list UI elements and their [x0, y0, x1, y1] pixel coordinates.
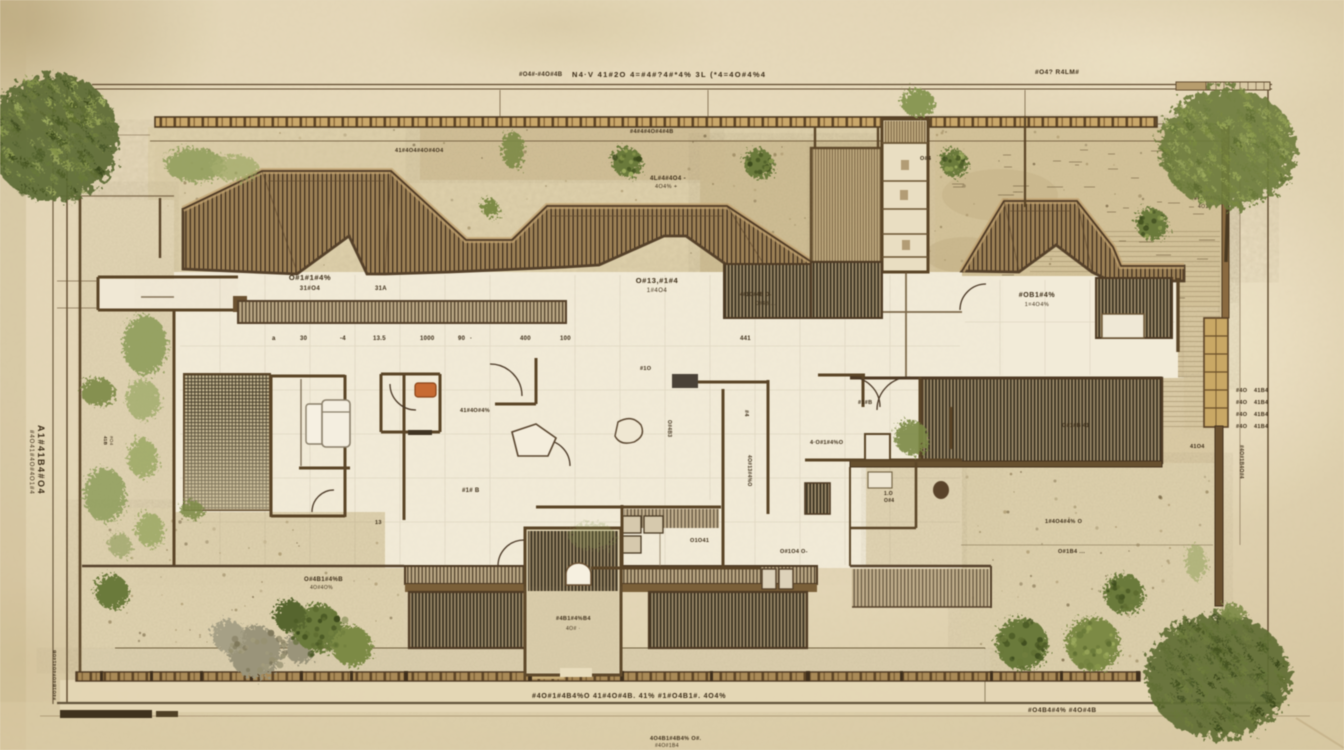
svg-text:#4O: #4O [1236, 400, 1248, 406]
svg-text:N4·V 41#2O 4=#4#?4#*4% 3L (*4=: N4·V 41#2O 4=#4#?4#*4% 3L (*4=4O#4%4 [572, 70, 766, 79]
svg-text:41O4: 41O4 [1190, 444, 1205, 450]
svg-text:#O4#-#4O#4B: #O4#-#4O#4B [519, 72, 563, 78]
svg-text:4O# ·: 4O# · [566, 626, 581, 632]
svg-text:1#4O4: 1#4O4 [647, 288, 668, 294]
svg-text:41B4: 41B4 [1254, 400, 1269, 406]
svg-text:O#1O4 O-: O#1O4 O- [780, 549, 808, 555]
svg-text:4O4B1#4B4% O#.: 4O4B1#4B4% O#. [650, 736, 702, 742]
svg-text:#O4? R4LM#: #O4? R4LM# [1035, 69, 1079, 76]
svg-text:4O#4O%: 4O#4O% [310, 585, 333, 591]
svg-text:O1O41: O1O41 [690, 538, 709, 544]
svg-text:O#1#1#4%: O#1#1#4% [289, 273, 331, 282]
svg-text:#1# B: #1# B [462, 488, 480, 494]
svg-text:4#1O#4B O-: 4#1O#4B O- [740, 292, 771, 298]
svg-text:100: 100 [560, 336, 571, 342]
svg-text:#4O: #4O [1236, 424, 1248, 430]
svg-text:4O4% +: 4O4% + [655, 184, 677, 190]
svg-text:A1#41B4#O4: A1#41B4#O4 [36, 425, 46, 495]
svg-text:O#1#B 41: O#1#B 41 [1062, 423, 1089, 429]
svg-text:-4: -4 [340, 336, 346, 342]
svg-text:a: a [272, 336, 276, 342]
svg-text:#4B1#4%B4: #4B1#4%B4 [556, 616, 591, 622]
svg-text:O#4B3: O#4B3 [666, 420, 672, 437]
svg-text:#4O: #4O [1236, 412, 1248, 418]
svg-text:#4O#1B4: #4O#1B4 [655, 743, 679, 749]
svg-text:31A: 31A [375, 286, 387, 292]
svg-text:#4O#1#4B4%O 41#4O#4B. 41% #1#O: #4O#1#4B4%O 41#4O#4B. 41% #1#O4B1#. 4O4% [532, 693, 726, 700]
svg-text:90: 90 [458, 336, 466, 342]
svg-text:#4O1B4O#4O414OB: #4O1B4O#4O414OB [52, 649, 57, 700]
svg-text:13.5: 13.5 [373, 336, 386, 342]
svg-text:#O4B4#4% #4O#4B: #O4B4#4% #4O#4B [1028, 707, 1097, 714]
svg-text:#1O: #1O [640, 366, 652, 372]
svg-text:41B: 41B [103, 436, 108, 446]
svg-text:#OB1#4%: #OB1#4% [1019, 292, 1056, 299]
svg-text:441: 441 [740, 336, 751, 342]
svg-text:O#4: O#4 [920, 156, 932, 162]
svg-text:4O#13#4%O: 4O#13#4%O [746, 455, 752, 487]
svg-text:#4O: #4O [1236, 388, 1248, 394]
svg-text:41#4O4#4O#4O4: 41#4O4#4O#4O4 [395, 148, 444, 154]
svg-text:400: 400 [520, 336, 531, 342]
svg-text:41#4O#4%: 41#4O#4% [460, 408, 490, 414]
svg-text:4·O#1#4%O: 4·O#1#4%O [810, 440, 844, 446]
svg-text:4L#4#4O4 -: 4L#4#4O4 - [650, 176, 686, 182]
svg-text:1#4O4#4% O: 1#4O4#4% O [1045, 519, 1083, 525]
svg-text:O#4B ...: O#4B ... [755, 301, 776, 307]
svg-text:#1#B: #1#B [858, 400, 872, 406]
svg-text:O#4: O#4 [884, 498, 894, 504]
svg-text:1000: 1000 [420, 336, 435, 342]
svg-text:41B4: 41B4 [1254, 388, 1269, 394]
svg-text:#4O#1B4O#4: #4O#1B4O#4 [1238, 445, 1244, 479]
svg-text:30: 30 [300, 336, 308, 342]
svg-text:·: · [470, 336, 472, 342]
svg-text:#4#4#4O#4#4B: #4#4#4O#4#4B [630, 129, 674, 135]
svg-text:O#1B4 ...: O#1B4 ... [1058, 549, 1085, 555]
svg-text:41B4: 41B4 [1254, 412, 1269, 418]
svg-text:O#13,#1#4: O#13,#1#4 [636, 276, 679, 285]
svg-text:41B4: 41B4 [1254, 424, 1269, 430]
svg-text:31#O4: 31#O4 [300, 286, 321, 292]
svg-text:1.O: 1.O [884, 491, 893, 497]
svg-text:#4: #4 [743, 410, 749, 417]
svg-text:#O4: #O4 [109, 436, 114, 446]
svg-text:13: 13 [375, 520, 382, 526]
svg-text:O#4B1#4%B: O#4B1#4%B [304, 577, 343, 583]
svg-text:#4O41#4O#4O1#4: #4O41#4O#4O1#4 [28, 430, 34, 495]
svg-text:1=4O4%: 1=4O4% [1025, 302, 1050, 308]
